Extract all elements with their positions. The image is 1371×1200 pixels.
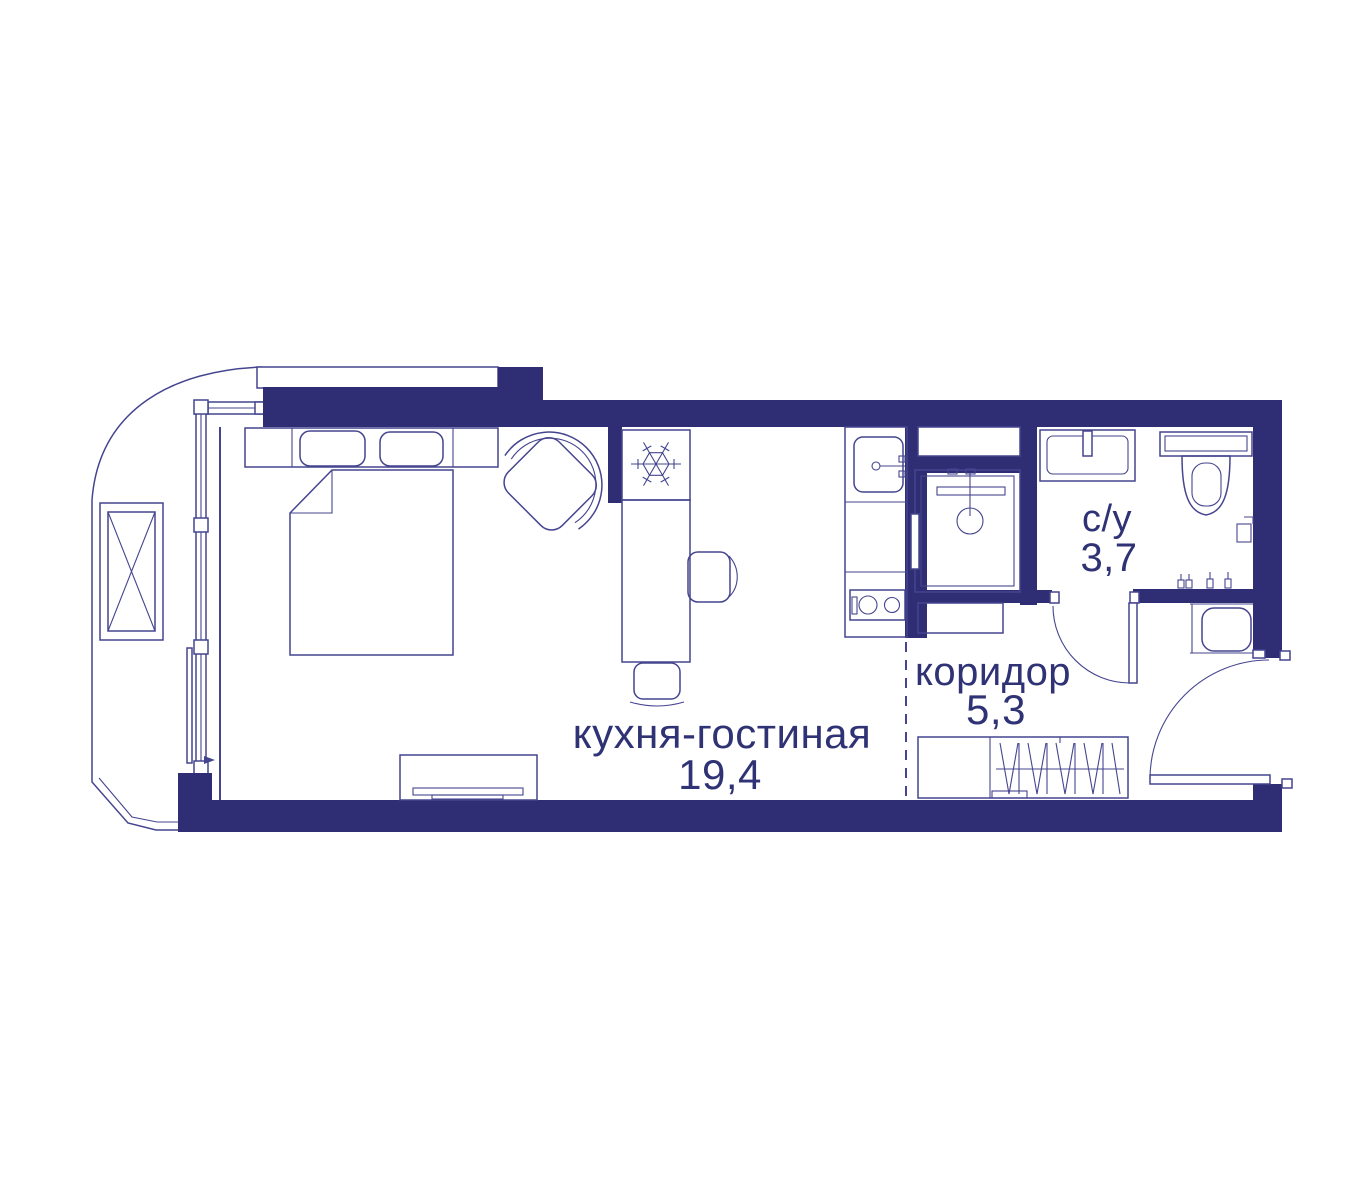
corridor-cabinet <box>918 603 1003 633</box>
double-bed <box>245 428 498 655</box>
door-leaf <box>1129 603 1137 683</box>
window-wall <box>187 400 268 800</box>
balcony <box>92 367 262 830</box>
floor-plan: кухня-гостиная 19,4 коридор 5,3 с/у 3,7 <box>0 0 1371 1200</box>
wardrobe <box>918 737 1128 798</box>
floor-plan-page: кухня-гостиная 19,4 коридор 5,3 с/у 3,7 <box>0 0 1371 1200</box>
washbasin <box>1040 430 1135 481</box>
window-mullion <box>194 400 208 414</box>
basin-tap <box>1083 431 1092 456</box>
kitchen-sink <box>854 437 905 492</box>
door-jamb <box>1253 650 1265 658</box>
pillow <box>300 431 365 466</box>
tv-stand <box>400 755 537 800</box>
dining-chair <box>688 552 737 602</box>
kitchen-living-label: кухня-гостиная <box>573 710 872 757</box>
pillow <box>380 432 443 466</box>
parapet-strip <box>257 367 498 388</box>
tv <box>413 788 523 795</box>
stool <box>630 663 684 706</box>
window-mullion <box>194 518 208 532</box>
toilet <box>1160 432 1252 515</box>
kitchen-living-area: 19,4 <box>678 751 762 798</box>
door-leaf <box>1150 775 1270 784</box>
kitchen <box>622 427 907 706</box>
entrance-door <box>1150 650 1292 788</box>
balcony-inner-edge <box>99 778 178 822</box>
inner-wall-face <box>219 427 221 800</box>
toilet-paper-holder <box>1237 517 1253 542</box>
shower-bar <box>937 487 1005 495</box>
door-jamb <box>1130 592 1139 603</box>
door-jamb <box>1050 592 1059 603</box>
corridor-area: 5,3 <box>966 686 1026 733</box>
bathroom-label: с/у <box>1082 498 1132 540</box>
balcony-hatch-box <box>100 503 163 640</box>
door-swing-arc <box>1150 660 1269 779</box>
kitchen-island <box>622 500 690 662</box>
balcony-door-leaf <box>187 648 192 763</box>
shower-door-handle <box>911 514 919 569</box>
shower-cabin <box>911 469 1020 592</box>
hallway-cabinet <box>1190 604 1253 653</box>
balcony-outline <box>92 367 262 830</box>
armchair <box>487 410 624 547</box>
wall-niche <box>918 427 1020 456</box>
bedside-console <box>245 428 498 467</box>
window-mullion <box>194 640 208 654</box>
balcony-door-handle <box>204 756 215 764</box>
bathroom-area: 3,7 <box>1080 536 1137 580</box>
towel-hooks <box>1178 572 1231 588</box>
stove <box>850 590 905 620</box>
snowflake-icon <box>631 442 681 485</box>
bed-body <box>290 470 453 655</box>
